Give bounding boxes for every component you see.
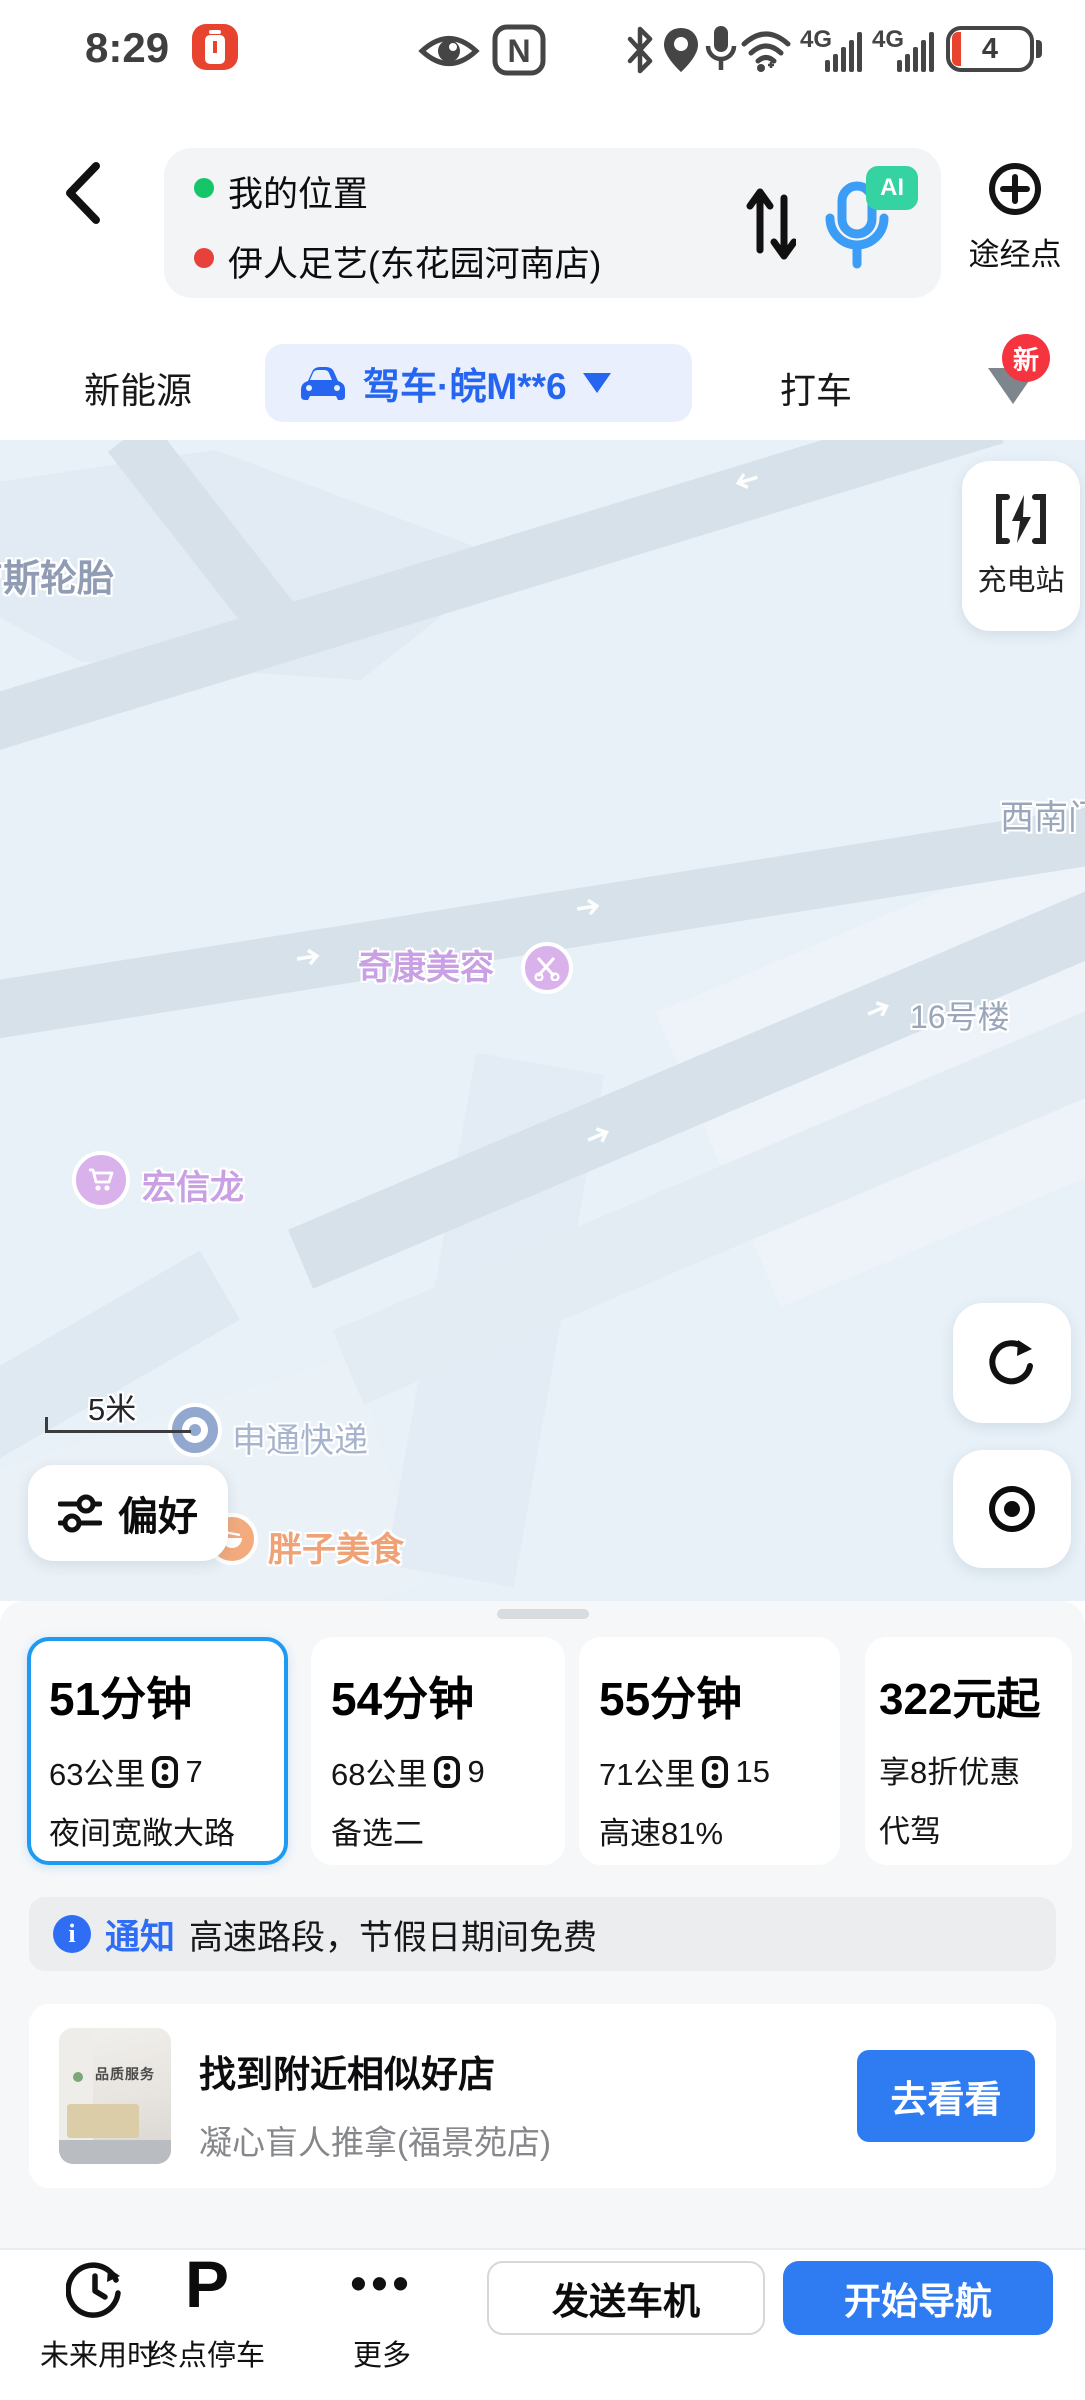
send-to-car-button[interactable]: 发送车机 [487, 2261, 765, 2335]
info-icon: i [53, 1915, 91, 1953]
drag-handle[interactable] [497, 1609, 589, 1619]
map-label-tire: 吉斯轮胎 [0, 548, 114, 602]
route-card-2[interactable]: 54分钟 68公里 9 备选二 [311, 1637, 565, 1865]
nearby-shop-card[interactable]: 品质服务 找到附近相似好店 凝心盲人推拿(福景苑店) 去看看 [29, 2004, 1056, 2188]
start-navigation-button[interactable]: 开始导航 [783, 2261, 1053, 2335]
destination-dot-icon [194, 248, 214, 268]
ad-title: 找到附近相似好店 [199, 2044, 495, 2098]
clock-icon [66, 2260, 124, 2318]
route-detail: 63公里 7 [49, 1749, 266, 1794]
map-label-building16: 16号楼 [910, 992, 1010, 1038]
destination-field[interactable]: 伊人足艺(东花园河南店) [228, 236, 601, 287]
cellular-signal-1: 4G [800, 26, 862, 74]
ai-badge: AI [866, 166, 918, 210]
map-scale-label: 5米 [88, 1384, 136, 1429]
route-card-1[interactable]: 51分钟 63公里 7 夜间宽敞大路 [27, 1637, 288, 1865]
map-label-pangzi: 胖子美食 [268, 1522, 404, 1571]
chevron-down-icon [583, 373, 611, 393]
car-icon [297, 362, 349, 404]
wifi-icon [740, 28, 792, 72]
tab-drive-selected[interactable]: 驾车·皖M**6 [265, 344, 692, 422]
notice-bar[interactable]: i 通知 高速路段，节假日期间免费 [29, 1897, 1056, 1971]
route-time: 55分钟 [599, 1663, 820, 1729]
traffic-light-icon [434, 1756, 460, 1788]
refresh-icon [985, 1336, 1039, 1390]
map-label-hongxinlong: 宏信龙 [142, 1160, 244, 1209]
eye-comfort-icon [418, 28, 480, 74]
map-label-beauty: 奇康美容 [358, 940, 494, 989]
add-waypoint-button[interactable]: 途经点 [950, 162, 1080, 302]
preference-label: 偏好 [118, 1484, 198, 1542]
swap-endpoints-icon[interactable] [746, 184, 796, 264]
destination-parking-button[interactable]: P [145, 2246, 269, 2322]
clock-time: 8:29 [85, 24, 169, 72]
route-detail: 71公里 15 [599, 1749, 820, 1794]
traffic-light-icon [702, 1756, 728, 1788]
future-eta-button[interactable] [40, 2260, 150, 2318]
map-scale-bar [45, 1430, 191, 1433]
battery-nub [1036, 40, 1042, 58]
location-icon [662, 26, 700, 74]
ad-subtitle: 凝心盲人推拿(福景苑店) [199, 2116, 551, 2164]
notice-label: 通知 [105, 1909, 175, 1960]
route-time: 51分钟 [49, 1663, 266, 1729]
status-bar: 8:29 N 4G [0, 0, 1085, 100]
supermarket-poi-icon[interactable] [72, 1151, 130, 1209]
route-endpoints-box[interactable]: 我的位置 伊人足艺(东花园河南店) AI [164, 148, 941, 298]
origin-dot-icon [194, 178, 214, 198]
parking-icon: P [185, 2247, 229, 2321]
shop-thumbnail: 品质服务 [59, 2028, 171, 2164]
route-time: 54分钟 [331, 1663, 545, 1729]
notice-text: 高速路段，节假日期间免费 [189, 1910, 597, 1959]
tab-new-energy[interactable]: 新能源 [84, 362, 192, 414]
designated-driver-card[interactable]: 322元起 享8折优惠 代驾 [865, 1637, 1072, 1865]
map-label-southwest-gate: 西南门 [1000, 790, 1085, 839]
ai-voice-button[interactable]: AI [822, 166, 922, 282]
locate-button[interactable] [953, 1450, 1071, 1568]
route-tag: 高速81% [599, 1808, 820, 1853]
nfc-icon: N [492, 24, 546, 76]
route-tag: 备选二 [331, 1808, 545, 1853]
drive-plate-label: 驾车·皖M**6 [363, 356, 567, 410]
bluetooth-icon [626, 26, 654, 74]
traffic-light-icon [152, 1756, 178, 1788]
future-eta-label: 未来用时 [40, 2332, 150, 2374]
more-icon: ••• [350, 2257, 413, 2309]
go-see-button[interactable]: 去看看 [857, 2050, 1035, 2142]
more-label: 更多 [340, 2332, 424, 2374]
map-label-sto: 申通快递 [232, 1413, 368, 1462]
route-card-3[interactable]: 55分钟 71公里 15 高速81% [579, 1637, 840, 1865]
price: 322元起 [879, 1663, 1058, 1727]
route-detail: 68公里 9 [331, 1749, 545, 1794]
plus-circle-icon [988, 162, 1042, 216]
discount: 享8折优惠 [879, 1747, 1058, 1792]
charging-station-button[interactable]: 充电站 [962, 461, 1080, 631]
service-tag: 代驾 [879, 1806, 1058, 1851]
map-canvas[interactable]: 吉斯轮胎 西南门 奇康美容 16号楼 宏信龙 申通快递 胖子美食 5米 充电站 [0, 440, 1085, 1601]
cellular-signal-2: 4G [872, 26, 934, 74]
refresh-route-button[interactable] [953, 1303, 1071, 1423]
locate-icon [984, 1481, 1040, 1537]
charging-label: 充电站 [977, 557, 1064, 599]
svg-text:N: N [507, 33, 530, 69]
tab-taxi[interactable]: 打车 [780, 362, 852, 414]
bottom-action-bar: 未来用时 P 终点停车 ••• 更多 发送车机 开始导航 [0, 2248, 1085, 2400]
route-header: 我的位置 伊人足艺(东花园河南店) AI 途经点 新能源 [0, 100, 1085, 440]
origin-field[interactable]: 我的位置 [228, 166, 368, 217]
route-tag: 夜间宽敞大路 [49, 1808, 266, 1853]
microphone-icon [704, 24, 738, 76]
sliders-icon [58, 1493, 102, 1533]
battery-warning-icon [192, 24, 238, 70]
beauty-poi-icon[interactable] [521, 942, 573, 994]
new-badge: 新 [1002, 334, 1050, 382]
waypoint-label: 途经点 [950, 229, 1080, 274]
preference-button[interactable]: 偏好 [28, 1465, 228, 1561]
parking-label: 终点停车 [145, 2332, 269, 2374]
battery-icon: 4 [946, 26, 1034, 72]
back-icon[interactable] [58, 158, 106, 228]
charging-icon [993, 493, 1049, 545]
more-button[interactable]: ••• [340, 2256, 424, 2310]
thumbnail-caption: 品质服务 [95, 2064, 155, 2084]
